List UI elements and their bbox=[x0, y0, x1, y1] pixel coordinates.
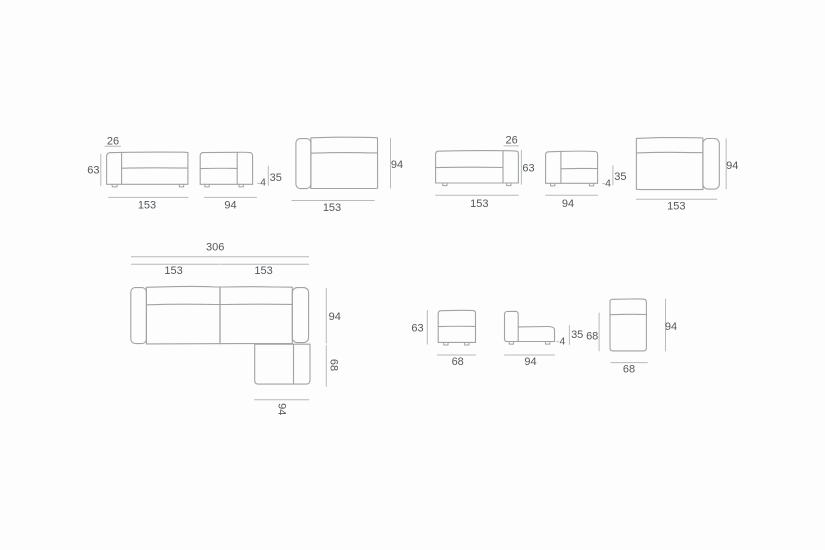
svg-text:68: 68 bbox=[328, 359, 340, 371]
svg-text:68: 68 bbox=[623, 363, 635, 375]
svg-text:4: 4 bbox=[605, 177, 611, 189]
svg-text:35: 35 bbox=[270, 172, 282, 184]
svg-text:26: 26 bbox=[107, 135, 119, 147]
svg-text:306: 306 bbox=[206, 242, 224, 254]
svg-text:153: 153 bbox=[164, 265, 182, 277]
svg-text:94: 94 bbox=[391, 159, 403, 171]
svg-text:94: 94 bbox=[224, 200, 236, 212]
svg-text:4: 4 bbox=[260, 176, 266, 188]
svg-text:63: 63 bbox=[522, 162, 534, 174]
svg-text:35: 35 bbox=[571, 329, 583, 341]
svg-text:153: 153 bbox=[667, 201, 685, 213]
svg-text:63: 63 bbox=[411, 322, 423, 334]
svg-text:94: 94 bbox=[726, 160, 738, 172]
svg-text:35: 35 bbox=[614, 171, 626, 183]
svg-text:153: 153 bbox=[138, 200, 156, 212]
svg-text:153: 153 bbox=[323, 202, 341, 214]
svg-text:94: 94 bbox=[562, 198, 574, 210]
svg-text:153: 153 bbox=[254, 265, 272, 277]
svg-text:4: 4 bbox=[559, 336, 565, 348]
svg-text:153: 153 bbox=[470, 198, 488, 210]
svg-text:94: 94 bbox=[524, 356, 536, 368]
svg-text:68: 68 bbox=[452, 356, 464, 368]
svg-text:94: 94 bbox=[276, 403, 288, 415]
svg-text:94: 94 bbox=[329, 311, 341, 323]
svg-text:26: 26 bbox=[505, 134, 517, 146]
svg-text:94: 94 bbox=[665, 321, 677, 333]
svg-text:68: 68 bbox=[586, 330, 598, 342]
svg-text:63: 63 bbox=[87, 165, 99, 177]
